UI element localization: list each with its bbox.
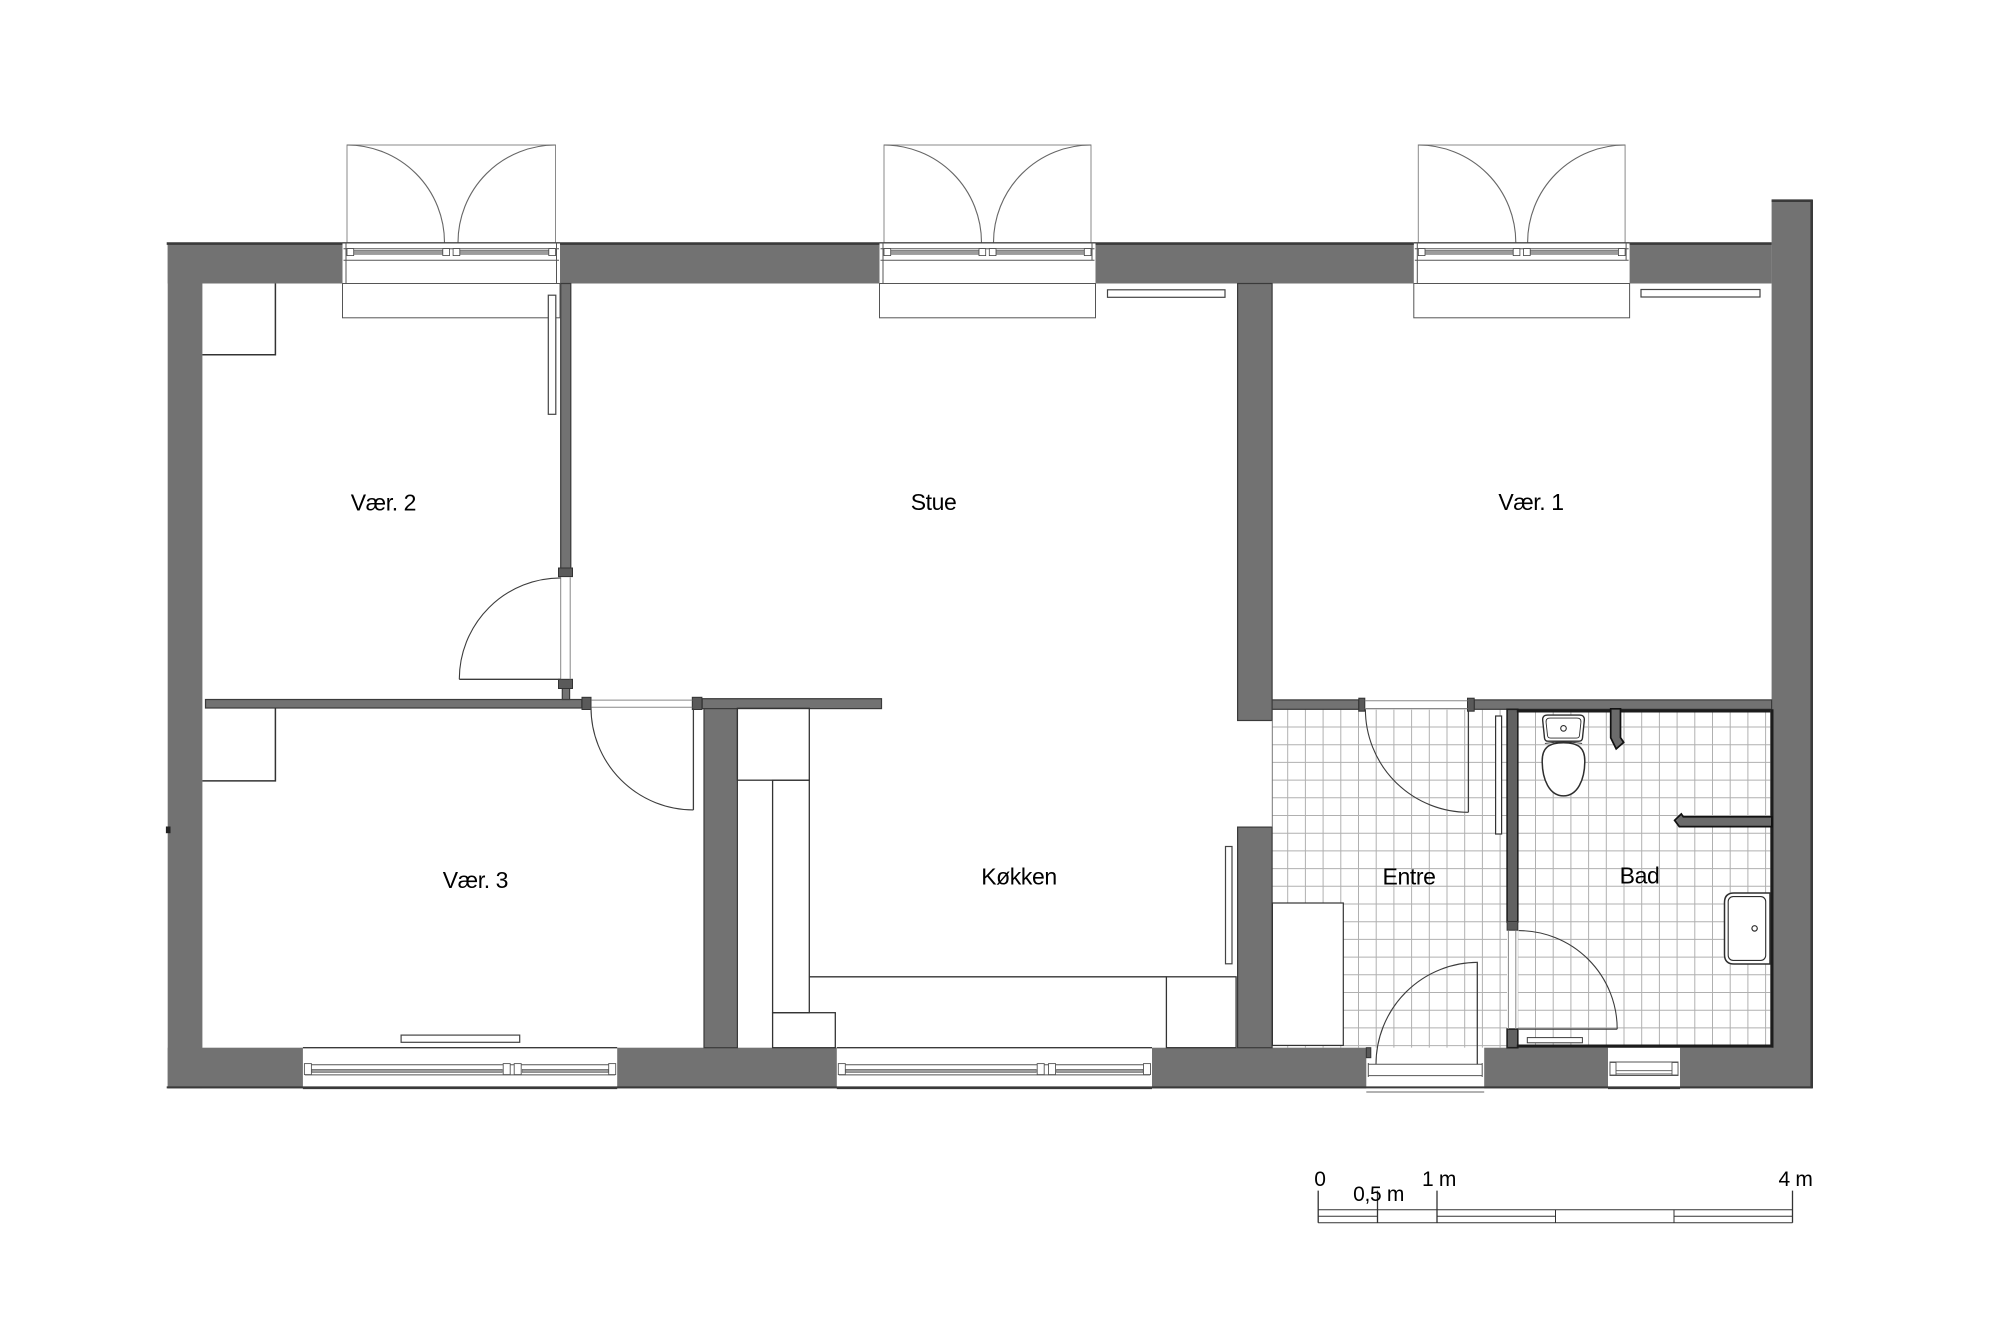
svg-text:Bad: Bad [1620, 863, 1660, 889]
svg-text:Vær. 2: Vær. 2 [351, 489, 416, 515]
svg-text:Entre: Entre [1383, 863, 1436, 889]
svg-text:0: 0 [1314, 1168, 1325, 1191]
svg-text:Køkken: Køkken [981, 864, 1057, 890]
svg-text:Vær. 1: Vær. 1 [1498, 489, 1563, 515]
svg-text:Stue: Stue [911, 489, 957, 515]
svg-text:4 m: 4 m [1778, 1168, 1812, 1191]
svg-text:1 m: 1 m [1422, 1168, 1456, 1191]
svg-text:Vær. 3: Vær. 3 [443, 867, 508, 893]
svg-text:0,5 m: 0,5 m [1353, 1183, 1404, 1206]
